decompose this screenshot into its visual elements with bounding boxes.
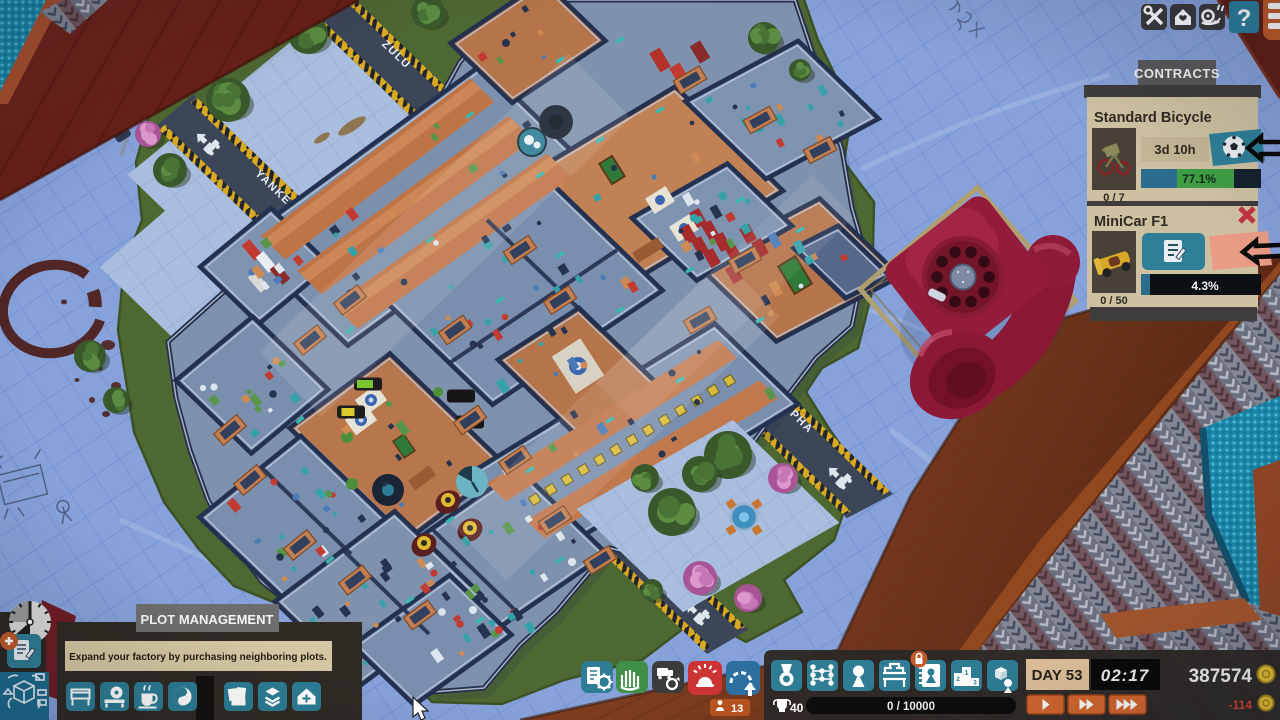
svg-text:Standard Bicycle: Standard Bicycle (1094, 110, 1212, 126)
svg-text:DAY 53: DAY 53 (1032, 667, 1083, 684)
svg-text:0 / 50: 0 / 50 (1100, 295, 1128, 307)
svg-text:40: 40 (790, 701, 804, 715)
svg-text:4.3%: 4.3% (1191, 279, 1219, 293)
svg-text:387574: 387574 (1189, 666, 1253, 687)
svg-text:77.1%: 77.1% (1182, 172, 1216, 186)
svg-text:02:17: 02:17 (1101, 666, 1150, 685)
svg-text:Expand your factory by purchas: Expand your factory by purchasing neighb… (69, 652, 327, 663)
svg-text:13: 13 (731, 703, 743, 715)
svg-text:PLOT MANAGEMENT: PLOT MANAGEMENT (141, 612, 274, 627)
svg-text:0 / 10000: 0 / 10000 (887, 701, 935, 713)
svg-text:MiniCar F1: MiniCar F1 (1094, 214, 1168, 230)
svg-text:-114: -114 (1229, 698, 1253, 712)
svg-text:3d 10h: 3d 10h (1154, 142, 1195, 157)
svg-text:?: ? (1237, 5, 1252, 32)
svg-text:CONTRACTS: CONTRACTS (1134, 66, 1220, 81)
svg-text:2: 2 (956, 676, 960, 683)
svg-text:1: 1 (964, 668, 968, 677)
